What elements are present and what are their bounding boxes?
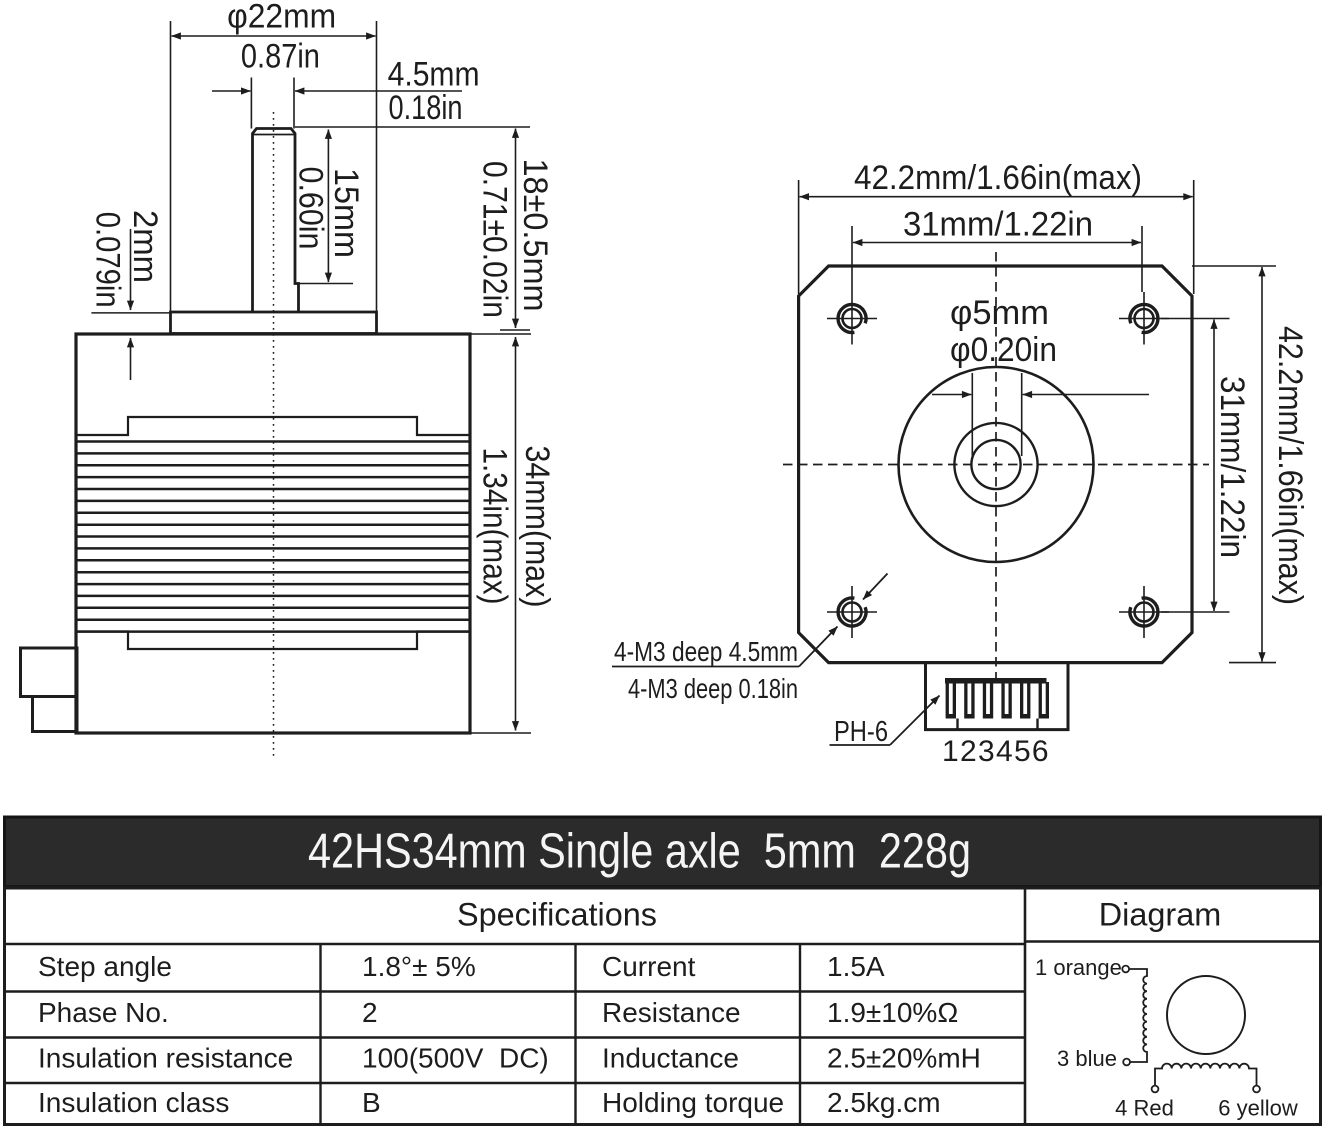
- svg-text:31mm/1.22in: 31mm/1.22in: [1213, 376, 1251, 558]
- svg-text:34mm(max): 34mm(max): [518, 446, 556, 608]
- svg-text:1.34in(max): 1.34in(max): [476, 448, 514, 605]
- svg-text:0.18in: 0.18in: [389, 89, 463, 127]
- svg-text:0.87in: 0.87in: [241, 38, 320, 76]
- svg-text:1.5A: 1.5A: [827, 951, 885, 982]
- svg-text:φ0.20in: φ0.20in: [950, 331, 1057, 369]
- svg-text:42HS34mm Single axle 5mm 228: 42HS34mm Single axle 5mm 228g: [308, 825, 971, 879]
- svg-text:Inductance: Inductance: [602, 1043, 739, 1074]
- svg-text:Holding torque: Holding torque: [602, 1087, 784, 1118]
- svg-text:Resistance: Resistance: [602, 997, 741, 1028]
- svg-text:4-M3 deep 0.18in: 4-M3 deep 0.18in: [628, 673, 798, 704]
- svg-text:0.71±0.02in: 0.71±0.02in: [476, 161, 514, 318]
- svg-text:42.2mm/1.66in(max): 42.2mm/1.66in(max): [1271, 326, 1309, 605]
- svg-text:Diagram: Diagram: [1099, 896, 1222, 932]
- svg-text:4 Red: 4 Red: [1115, 1096, 1174, 1121]
- svg-text:4-M3 deep 4.5mm: 4-M3 deep 4.5mm: [614, 636, 798, 667]
- svg-text:2: 2: [362, 997, 378, 1028]
- svg-text:2.5kg.cm: 2.5kg.cm: [827, 1087, 941, 1118]
- svg-text:Step angle: Step angle: [38, 951, 172, 982]
- svg-text:4.5mm: 4.5mm: [388, 56, 480, 94]
- svg-text:123456: 123456: [942, 735, 1050, 768]
- svg-text:φ22mm: φ22mm: [227, 0, 336, 36]
- svg-text:0.079in: 0.079in: [89, 212, 127, 308]
- svg-text:100(500V DC): 100(500V DC): [362, 1043, 549, 1074]
- svg-text:Phase No.: Phase No.: [38, 997, 169, 1028]
- svg-text:2mm: 2mm: [126, 210, 164, 283]
- svg-text:1 orange: 1 orange: [1035, 955, 1122, 980]
- svg-text:Specifications: Specifications: [457, 896, 657, 932]
- svg-text:3 blue: 3 blue: [1057, 1046, 1117, 1071]
- svg-text:1.9±10%Ω: 1.9±10%Ω: [827, 997, 958, 1028]
- svg-text:42.2mm/1.66in(max): 42.2mm/1.66in(max): [854, 159, 1142, 197]
- svg-text:6 yellow: 6 yellow: [1218, 1096, 1298, 1121]
- svg-text:1.8°± 5%: 1.8°± 5%: [362, 951, 476, 982]
- svg-text:PH-6: PH-6: [834, 716, 888, 748]
- svg-text:31mm/1.22in: 31mm/1.22in: [903, 206, 1093, 244]
- svg-text:B: B: [362, 1087, 381, 1118]
- svg-text:15mm: 15mm: [327, 168, 365, 258]
- svg-text:18±0.5mm: 18±0.5mm: [516, 159, 554, 312]
- svg-text:0.60in: 0.60in: [292, 167, 330, 250]
- svg-text:Current: Current: [602, 951, 696, 982]
- svg-text:Insulation class: Insulation class: [38, 1087, 229, 1118]
- svg-text:Insulation resistance: Insulation resistance: [38, 1043, 293, 1074]
- svg-text:φ5mm: φ5mm: [950, 294, 1049, 332]
- svg-text:2.5±20%mH: 2.5±20%mH: [827, 1043, 981, 1074]
